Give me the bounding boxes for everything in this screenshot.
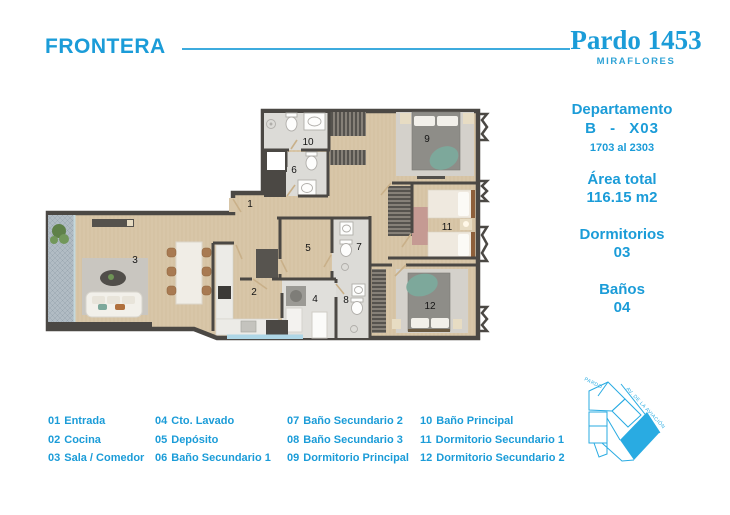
room-number-6: 6 xyxy=(291,165,297,176)
window-glass xyxy=(227,335,303,340)
project-title: Pardo 1453 xyxy=(556,26,716,54)
dining-table xyxy=(176,242,202,304)
floor-plan: 1 2 3 4 5 6 7 8 9 10 11 12 xyxy=(40,103,500,353)
bedroom2-rug xyxy=(412,207,428,245)
floorplan-sheet: FRONTERA Pardo 1453 MIRAFLORES Departame… xyxy=(0,0,730,515)
bed2a-headboard xyxy=(471,190,475,218)
room-number-12: 12 xyxy=(424,301,436,312)
unit-bathrooms-value: 04 xyxy=(540,299,704,317)
laundry-door xyxy=(312,312,327,338)
legend-column-2: 04Cto. Lavado 05Depósito 06Baño Secundar… xyxy=(155,412,271,468)
room-number-4: 4 xyxy=(312,294,318,305)
legend-item: 10Baño Principal xyxy=(420,412,565,431)
console-box xyxy=(127,220,133,226)
duct-shaft xyxy=(266,151,286,171)
nightstand xyxy=(400,113,411,124)
unit-info-panel: Departamento B - X03 1703 al 2303 Área t… xyxy=(540,101,704,317)
sofa-pillow-teal xyxy=(98,304,107,310)
master-pillow xyxy=(414,116,435,126)
nightstand xyxy=(463,113,474,124)
unit-bedrooms-label: Dormitorios xyxy=(540,226,704,244)
legend-item: 06Baño Secundario 1 xyxy=(155,449,271,468)
bed-bench xyxy=(417,176,445,179)
header-divider xyxy=(182,48,570,50)
bed3-pillow xyxy=(411,318,429,328)
hall-closet-hatch xyxy=(330,150,366,165)
sofa-cushion xyxy=(92,296,105,304)
legend-item: 09Dormitorio Principal xyxy=(287,449,409,468)
street-label-pardo: PARDO xyxy=(583,376,603,390)
unit-area-value: 116.15 m2 xyxy=(540,189,704,207)
bed3-headboard xyxy=(408,329,450,332)
kitchen-sink xyxy=(241,321,256,332)
bed2b-headboard xyxy=(471,232,475,258)
linen-closet xyxy=(372,269,386,333)
room-number-8: 8 xyxy=(343,295,349,306)
unit-type-label: Departamento xyxy=(540,101,704,119)
room-number-9: 9 xyxy=(424,134,430,145)
bed2b-pillow xyxy=(458,234,469,256)
room-number-7: 7 xyxy=(356,242,362,253)
washer-door-icon xyxy=(290,290,302,302)
master-closet-hatch xyxy=(330,112,366,136)
legend-item: 12Dormitorio Secundario 2 xyxy=(420,449,565,468)
legend-item: 11Dormitorio Secundario 1 xyxy=(420,431,565,450)
kitchen-cooktop xyxy=(218,286,231,299)
wall-mass xyxy=(264,169,286,197)
room-number-10: 10 xyxy=(302,137,314,148)
wardrobe-rack xyxy=(388,186,412,236)
legend-column-3: 07Baño Secundario 2 08Baño Secundario 3 … xyxy=(287,412,409,468)
sofa-cushion xyxy=(122,296,135,304)
room-number-2: 2 xyxy=(251,287,257,298)
brand-logo: FRONTERA xyxy=(45,35,166,59)
lamp-icon xyxy=(463,221,469,227)
legend-item: 01Entrada xyxy=(48,412,144,431)
bed2a-pillow xyxy=(458,192,469,216)
legend-item: 03Sala / Comedor xyxy=(48,449,144,468)
project-title-block: Pardo 1453 MIRAFLORES xyxy=(556,26,716,67)
project-district: MIRAFLORES xyxy=(556,56,716,67)
sofa-pillow-orange xyxy=(115,304,125,310)
french-balcony-icon xyxy=(480,114,487,331)
nightstand xyxy=(392,319,401,329)
bed3-pillow xyxy=(431,318,449,328)
nightstand xyxy=(453,319,462,329)
room-number-1: 1 xyxy=(247,199,253,210)
site-key-plan: PARDO AV. DE LA AVIACIÓN xyxy=(572,358,707,478)
unit-bathrooms-label: Baños xyxy=(540,281,704,299)
room-number-5: 5 xyxy=(305,243,311,254)
room-number-3: 3 xyxy=(132,255,138,266)
legend-item: 07Baño Secundario 2 xyxy=(287,412,409,431)
fridge xyxy=(256,249,278,278)
wall-mass xyxy=(266,320,288,335)
unit-area-label: Área total xyxy=(540,171,704,189)
legend-column-4: 10Baño Principal 11Dormitorio Secundario… xyxy=(420,412,565,468)
legend-column-1: 01Entrada 02Cocina 03Sala / Comedor xyxy=(48,412,144,468)
bottom-wall-thick xyxy=(48,322,152,331)
table-plant-icon xyxy=(108,274,114,280)
legend-item: 04Cto. Lavado xyxy=(155,412,271,431)
sofa-cushion xyxy=(107,296,120,304)
unit-floors-range: 1703 al 2303 xyxy=(540,142,704,154)
legend-item: 02Cocina xyxy=(48,431,144,450)
master-pillow xyxy=(437,116,458,126)
kitchen-counter-left xyxy=(216,245,233,319)
legend-item: 05Depósito xyxy=(155,431,271,450)
sofa xyxy=(86,292,142,317)
dryer xyxy=(286,308,302,332)
legend-item: 08Baño Secundario 3 xyxy=(287,431,409,450)
unit-type-value: B - X03 xyxy=(540,120,704,138)
room-number-11: 11 xyxy=(442,222,453,233)
unit-bedrooms-value: 03 xyxy=(540,244,704,262)
